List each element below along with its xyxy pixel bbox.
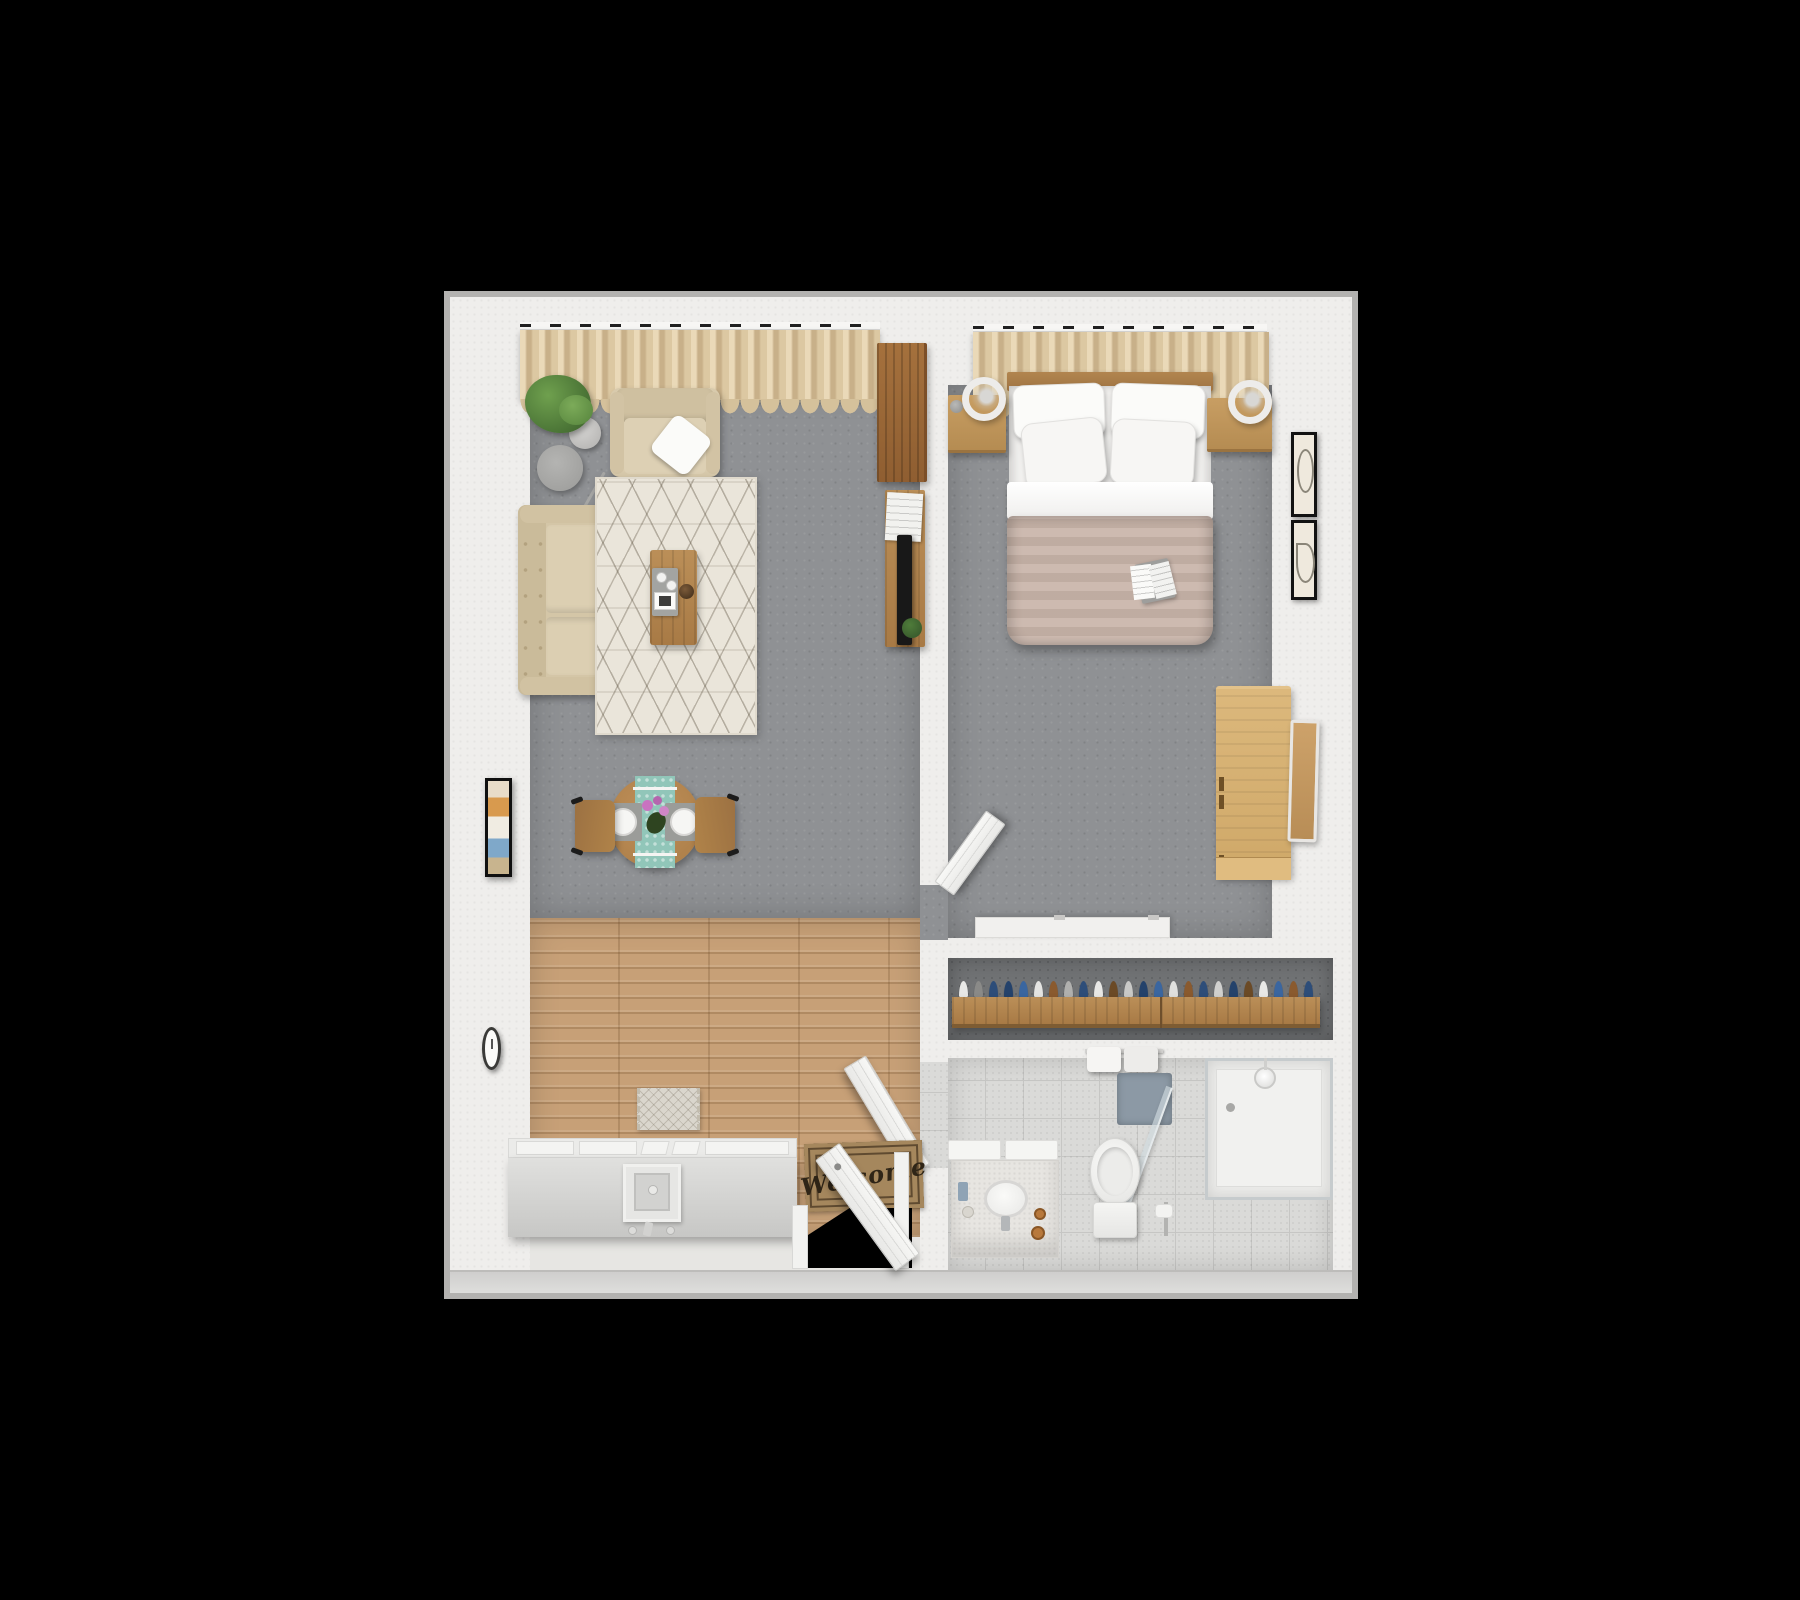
dresser-front-band <box>1216 857 1291 880</box>
bathroom-vanity <box>948 1140 1062 1260</box>
console-plant <box>902 618 922 638</box>
alarm-clock <box>950 400 963 413</box>
shelf-notch-1 <box>1054 915 1065 920</box>
candle-2 <box>1031 1226 1045 1240</box>
counter-panel-3 <box>640 1141 669 1155</box>
counter-panel-2 <box>579 1141 637 1155</box>
wooden-bowl <box>679 584 694 599</box>
entry-door-frame-left <box>792 1205 808 1269</box>
vanity-drawer-left <box>948 1140 1001 1160</box>
vanity-bottle <box>958 1182 968 1201</box>
closet-rail-seam <box>1160 997 1162 1028</box>
tv-console <box>885 490 925 647</box>
clothes-hanger <box>1184 981 1193 997</box>
counter-knob-right <box>666 1226 675 1235</box>
toilet-paper-holder <box>1155 1200 1175 1238</box>
shower-enclosure <box>1205 1058 1333 1200</box>
wall-clock <box>482 1027 501 1070</box>
wall-frame-top <box>1291 432 1317 517</box>
clothes-hanger <box>1004 981 1013 997</box>
clothes-hanger <box>974 981 983 997</box>
dining-table <box>609 776 701 868</box>
clothes-hanger <box>1109 981 1118 997</box>
bedroom-curtain-rod <box>973 324 1267 332</box>
vanity-jar <box>962 1206 974 1218</box>
closet-rail <box>952 997 1320 1028</box>
oven-sink-unit <box>623 1164 681 1222</box>
clothes-hanger <box>1229 981 1238 997</box>
armchair-arm-right <box>706 392 720 474</box>
shelf-notch-2 <box>1148 915 1159 920</box>
pillow-front-right <box>1109 418 1196 488</box>
clothes-hanger <box>1034 981 1043 997</box>
tablet-screen <box>659 596 671 606</box>
clothes-hanger <box>1214 981 1223 997</box>
dining-chair-right <box>695 797 735 853</box>
entry-door-knob <box>833 1162 843 1172</box>
candle-1 <box>1034 1208 1046 1220</box>
scene-background: { "meta": { "description": "3D top-down … <box>0 0 1800 1600</box>
coffee-table <box>650 550 697 645</box>
cutlery-bottom <box>633 853 677 856</box>
lamp-side-table <box>537 445 583 491</box>
vanity-drawer-right <box>1005 1140 1058 1160</box>
clothes-hanger <box>1289 981 1298 997</box>
clothes-hanger <box>1274 981 1283 997</box>
counter-panel-4 <box>671 1141 700 1155</box>
coffee-cup-1 <box>656 572 667 583</box>
dresser-slot-2 <box>1219 795 1224 809</box>
shower-head <box>1254 1067 1276 1089</box>
bed-sheet-fold <box>1007 482 1213 520</box>
cutlery-top <box>633 787 677 790</box>
clothes-hanger <box>1169 981 1178 997</box>
wall-art-picture <box>488 781 509 874</box>
coffee-cup-2 <box>666 580 677 591</box>
flower-pink-2 <box>653 796 662 805</box>
frame-bottom-art <box>1296 543 1315 583</box>
sofa-back-tufted <box>518 505 546 695</box>
clothes-hanger <box>1304 981 1313 997</box>
kitchen-counter <box>508 1138 797 1237</box>
bed <box>1007 372 1213 645</box>
magazine-on-bed <box>1130 560 1176 602</box>
towel-1 <box>1087 1047 1121 1072</box>
potted-plant <box>525 375 605 450</box>
flower-pink-3 <box>659 806 669 816</box>
toilet-tank <box>1093 1202 1137 1238</box>
clothes-hanger <box>1244 981 1253 997</box>
towel-2 <box>1124 1047 1158 1072</box>
armchair-arm-left <box>610 392 624 474</box>
armchair-back <box>616 388 714 422</box>
living-room-curtain-rod <box>520 322 880 330</box>
clothes-hanger <box>1259 981 1268 997</box>
clothes-hanger <box>989 981 998 997</box>
vanity-sink <box>984 1180 1028 1218</box>
pillow-front-left <box>1020 416 1108 490</box>
duvet <box>1007 516 1213 645</box>
clothes-hanger <box>1019 981 1028 997</box>
clothes-hanger <box>1199 981 1208 997</box>
clothes-hanger <box>1049 981 1058 997</box>
toilet-seat <box>1097 1147 1133 1196</box>
vanity-faucet <box>1001 1216 1010 1231</box>
shower-drain <box>1226 1103 1235 1112</box>
dining-chair-left <box>575 800 615 852</box>
plant-foliage-tuft <box>559 395 593 425</box>
clothes-hanger <box>959 981 968 997</box>
clothes-hanger <box>1124 981 1133 997</box>
clothes-hanger <box>1064 981 1073 997</box>
clothes-hanger <box>1154 981 1163 997</box>
clothes-hanger <box>1139 981 1148 997</box>
clothes-hanger <box>1094 981 1103 997</box>
toilet <box>1090 1138 1140 1242</box>
plate-right <box>670 808 698 836</box>
frame-top-art <box>1297 449 1314 493</box>
counter-knob-left <box>628 1226 637 1235</box>
kitchen-mat <box>637 1088 700 1130</box>
ring-lamp-right <box>1228 380 1272 424</box>
armchair <box>610 388 720 477</box>
wall-frame-bottom <box>1291 520 1317 600</box>
counter-panel-1 <box>516 1141 574 1155</box>
tablet-on-table <box>654 592 676 610</box>
tall-cabinet <box>877 343 927 482</box>
clock-hands <box>491 1039 493 1049</box>
shower-arm <box>1264 1058 1267 1070</box>
bedroom-wall-shelf <box>975 917 1170 938</box>
paper-roll <box>1155 1204 1173 1218</box>
clothes-hanger <box>1079 981 1088 997</box>
dresser-slot-1 <box>1219 777 1224 791</box>
ring-lamp-left <box>962 377 1006 421</box>
oven-knob <box>648 1185 658 1195</box>
leaning-mirror <box>1287 720 1319 843</box>
floorplan: Welcome <box>450 297 1352 1293</box>
wall-art-frame <box>485 778 512 877</box>
counter-panel-5 <box>705 1141 789 1155</box>
flower-pink-1 <box>642 800 653 811</box>
bottom-outer-wall <box>450 1270 1352 1293</box>
dresser <box>1216 686 1291 877</box>
bedroom-doorway-gap <box>920 885 948 940</box>
